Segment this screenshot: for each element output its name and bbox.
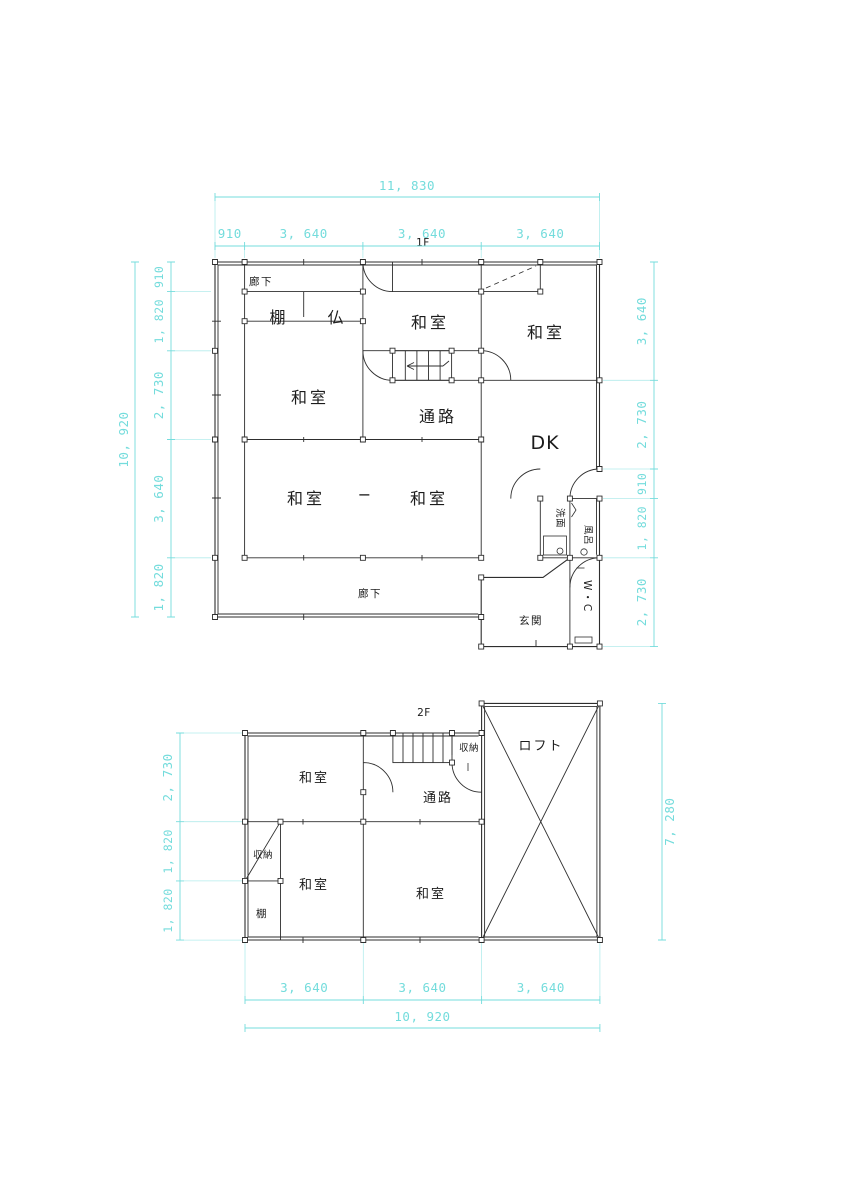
room-label-washitsu-bottom-left: 和室 [287, 489, 325, 508]
room-label-hallway-top: 廊下 [249, 275, 273, 288]
floor-1-plan: 廊下 棚 仏 和室 和室 和室 通路 DK 和室 − 和室 廊下 玄関 W・C … [116, 178, 658, 649]
floor-2-tag: 2F [417, 707, 431, 719]
floor-1-room-labels: 廊下 棚 仏 和室 和室 和室 通路 DK 和室 − 和室 廊下 玄関 W・C … [249, 237, 593, 627]
room-label-altar: 仏 [327, 308, 346, 327]
dim-2f-left-seg-2: 1, 820 [161, 888, 175, 933]
room-label-2f-washitsu-br: 和室 [416, 886, 446, 902]
room-label-2f-storage-left: 収納 [253, 849, 273, 861]
floor-1-dimensions: 11, 830 910 3, 640 3, 640 3, 640 10, 920… [116, 178, 658, 647]
dim-1f-top-seg-2: 3, 640 [398, 226, 446, 241]
room-label-washitsu-top-right: 和室 [527, 323, 565, 342]
floor-plan-page: 廊下 棚 仏 和室 和室 和室 通路 DK 和室 − 和室 廊下 玄関 W・C … [0, 0, 848, 1200]
room-label-washitsu-bottom-right: 和室 [410, 489, 448, 508]
dim-1f-top-total: 11, 830 [379, 178, 435, 193]
dim-1f-right-seg-1: 2, 730 [634, 401, 649, 449]
room-label-hallway-bottom2: 廊下 [358, 587, 382, 600]
dim-1f-left-seg-3: 3, 640 [151, 475, 166, 523]
dim-2f-left-seg-0: 2, 730 [160, 753, 175, 801]
sink-drain-icon [557, 548, 563, 554]
dim-1f-left-seg-2: 2, 730 [151, 371, 166, 419]
floor-1-stairs [393, 351, 452, 381]
dim-1f-right-seg-4: 2, 730 [634, 578, 649, 626]
room-label-washitsu-top-center: 和室 [411, 313, 449, 332]
room-label-2f-storage-top: 収納 [459, 742, 479, 754]
partition-dash: − [358, 485, 374, 504]
dim-1f-left-seg-1: 1, 820 [152, 299, 166, 344]
floor-2-doors [363, 763, 481, 793]
dim-1f-right-seg-2: 910 [635, 473, 649, 495]
floor-2-stairs [393, 733, 452, 763]
dim-2f-bottom-seg-2: 3, 640 [517, 980, 565, 995]
toilet-icon [575, 637, 592, 643]
room-label-washroom: 洗面 [554, 508, 566, 528]
dim-1f-top-seg-0: 910 [218, 226, 242, 241]
floor-1-fixtures [544, 503, 593, 643]
bath-door-icon [572, 503, 577, 517]
floor-plan-drawing: 廊下 棚 仏 和室 和室 和室 通路 DK 和室 − 和室 廊下 玄関 W・C … [0, 0, 848, 1200]
room-label-washitsu-left: 和室 [291, 388, 329, 407]
dim-2f-bottom-seg-0: 3, 640 [280, 980, 328, 995]
dim-1f-top-seg-3: 3, 640 [516, 226, 564, 241]
room-label-shelf: 棚 [269, 308, 288, 327]
dim-1f-left-seg-4: 1, 820 [151, 563, 166, 611]
dim-1f-right-seg-0: 3, 640 [634, 297, 649, 345]
dim-2f-bottom-total: 10, 920 [394, 1009, 450, 1024]
room-label-2f-passage: 通路 [423, 790, 453, 806]
dim-1f-right-seg-3: 1, 820 [635, 506, 649, 551]
dim-2f-left-seg-1: 1, 820 [161, 829, 175, 874]
room-label-loft: ロフト [518, 739, 563, 754]
dim-2f-right-total: 7, 280 [662, 798, 677, 846]
bath-drain-icon [581, 549, 587, 555]
dim-1f-left-seg-0: 910 [152, 266, 166, 288]
floor-2-room-labels: 和室 収納 通路 ロフト 収納 和室 和室 棚 2F [253, 707, 564, 920]
room-label-entrance: 玄関 [519, 614, 543, 627]
room-label-2f-washitsu-top: 和室 [299, 770, 329, 786]
dim-1f-left-total: 10, 920 [116, 411, 131, 467]
floor-2-plan: 和室 収納 通路 ロフト 収納 和室 和室 棚 2F 2, 730 1, 820… [160, 701, 677, 1032]
room-label-bath: 風呂 [582, 525, 593, 545]
room-label-2f-shelf: 棚 [256, 907, 268, 920]
dim-2f-bottom-seg-1: 3, 640 [398, 980, 446, 995]
room-label-passage-1f: 通路 [419, 407, 457, 426]
dim-1f-top-seg-1: 3, 640 [280, 226, 328, 241]
room-label-wc: W・C [581, 580, 593, 613]
room-label-2f-washitsu-bl: 和室 [299, 877, 329, 893]
room-label-dk: DK [530, 432, 559, 454]
